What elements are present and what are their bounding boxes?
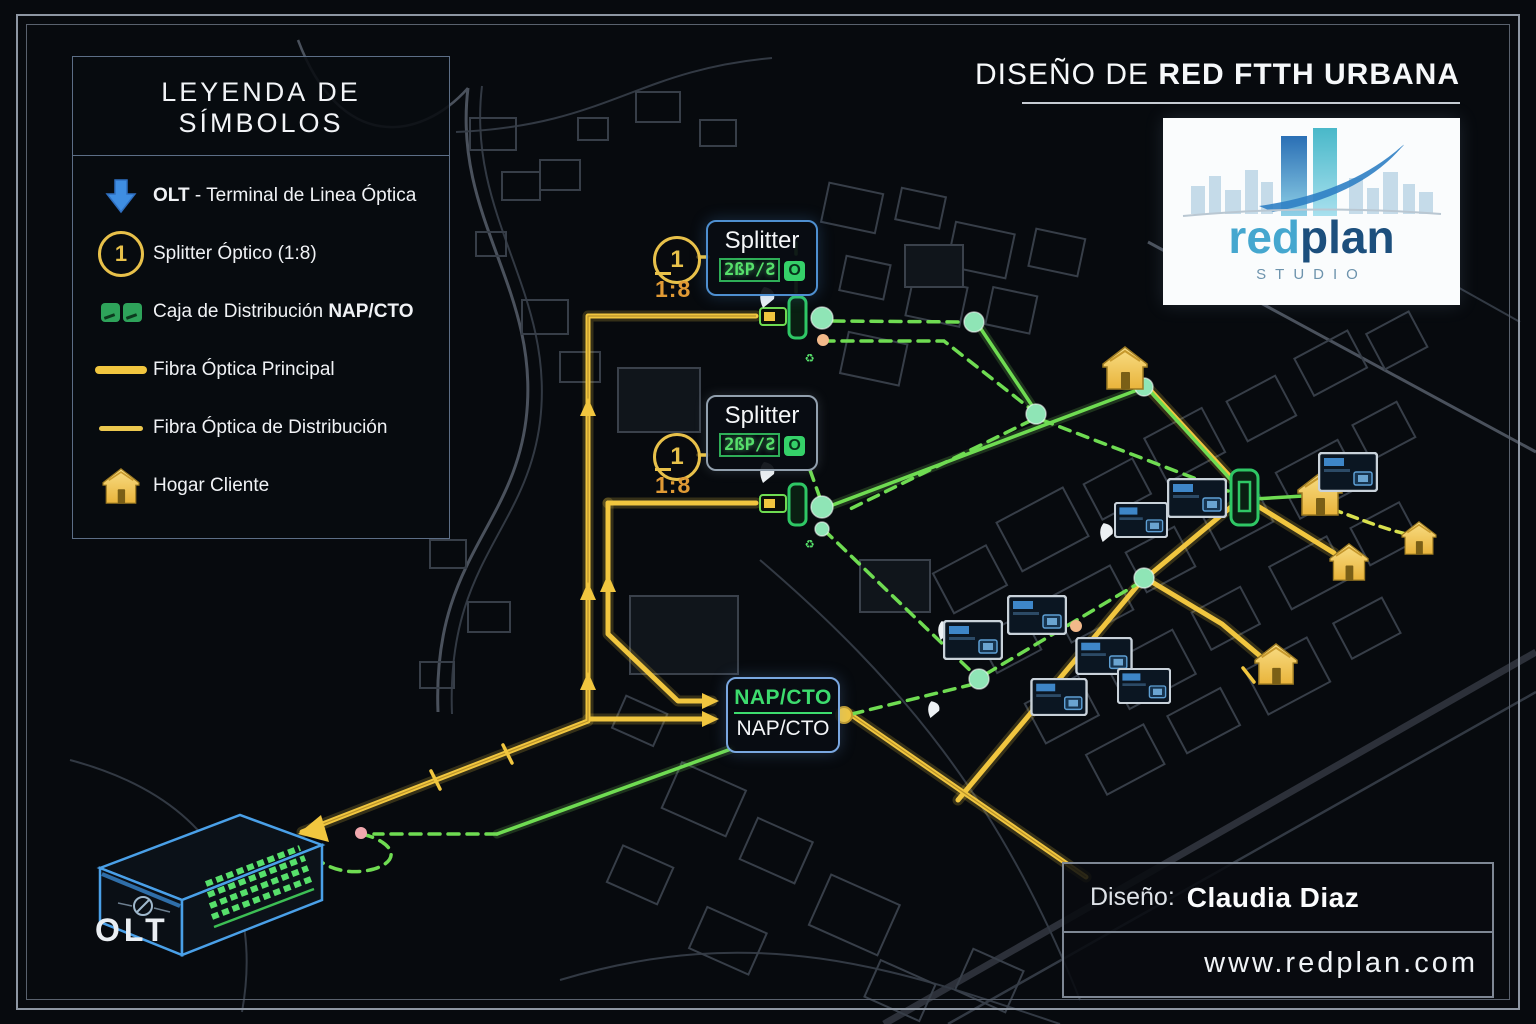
page-title: DISEÑO DE RED FTTH URBANA	[975, 58, 1460, 92]
design-label: Diseño:	[1090, 883, 1175, 912]
legend-panel: LEYENDA DE SÍMBOLOS OLT - Terminal de Li…	[72, 56, 450, 539]
svg-text:♻: ♻	[805, 348, 814, 366]
plaque-icon	[1319, 453, 1377, 491]
plaque-icon	[1008, 596, 1066, 634]
nap-cto-label-green: NAP/CTO	[734, 686, 832, 714]
plaque-icon	[944, 621, 1002, 659]
legend-item-splitter: 1 Splitter Óptico (1:8)	[89, 230, 439, 278]
website-url: www.redplan.com	[1204, 947, 1478, 980]
nap-box-icon	[89, 303, 153, 322]
footer-panel: Diseño: Claudia Diaz www.redplan.com	[1062, 862, 1494, 998]
designer-credit: Diseño: Claudia Diaz	[1064, 864, 1492, 933]
house-icon	[1103, 347, 1147, 389]
fiber-main-icon	[89, 366, 153, 374]
splitter-2-code: 2ßP/Ƨ	[719, 433, 780, 457]
plaque-icon	[1031, 679, 1086, 715]
legend-list: OLT - Terminal de Linea Óptica 1 Splitte…	[73, 156, 449, 538]
legend-item-house: Hogar Cliente	[89, 462, 439, 510]
page-title-prefix: DISEÑO DE	[975, 58, 1149, 91]
designer-name: Claudia Diaz	[1187, 882, 1359, 914]
splitter-1-code: 2ßP/Ƨ	[719, 258, 780, 282]
splitter-1-title: Splitter	[708, 227, 816, 255]
nap-cto-box: NAP/CTO NAP/CTO	[726, 677, 840, 753]
fiber-main-trunk	[302, 316, 1334, 877]
plaque-icon	[1168, 479, 1226, 517]
splitter-2-ratio: 1:8	[655, 468, 691, 499]
house-icon	[1402, 522, 1436, 554]
legend-title: LEYENDA DE SÍMBOLOS	[73, 57, 449, 156]
plaque-icon	[1115, 503, 1167, 537]
logo-word-plan: plan	[1300, 211, 1395, 263]
logo-wordmark: redplan	[1163, 214, 1460, 260]
olt-arrow-icon	[89, 176, 153, 216]
olt-label: OLT	[95, 912, 169, 949]
legend-item-fiber-dist: Fibra Óptica de Distribución	[89, 404, 439, 452]
splitter-2-title: Splitter	[708, 402, 816, 430]
title-underline	[1022, 102, 1460, 104]
nap-cto-label-white: NAP/CTO	[728, 717, 838, 741]
plaque-icon	[1118, 669, 1170, 703]
splitter-badge-icon: 1	[89, 231, 153, 277]
page-title-emphasis: RED FTTH URBANA	[1158, 58, 1460, 91]
legend-item-nap: Caja de Distribución NAP/CTO	[89, 288, 439, 336]
fiber-dist-icon	[89, 426, 153, 431]
svg-text:♻: ♻	[805, 534, 814, 552]
splitter-2-box: Splitter 2ßP/ƧO	[706, 395, 818, 471]
website-row: www.redplan.com	[1064, 933, 1492, 994]
ftth-design-poster: ♻ ♻	[0, 0, 1536, 1024]
splitter-1-ratio: 1:8	[655, 272, 691, 303]
logo-subtitle: STUDIO	[1163, 266, 1460, 283]
legend-item-olt: OLT - Terminal de Linea Óptica	[89, 172, 439, 220]
logo-word-red: red	[1228, 211, 1300, 263]
legend-item-fiber-main: Fibra Óptica Principal	[89, 346, 439, 394]
house-icon	[89, 468, 153, 504]
brand-logo: redplan STUDIO	[1163, 118, 1460, 305]
title-block: DISEÑO DE RED FTTH URBANA	[975, 58, 1460, 104]
splitter-1-box: Splitter 2ßP/ƧO	[706, 220, 818, 296]
